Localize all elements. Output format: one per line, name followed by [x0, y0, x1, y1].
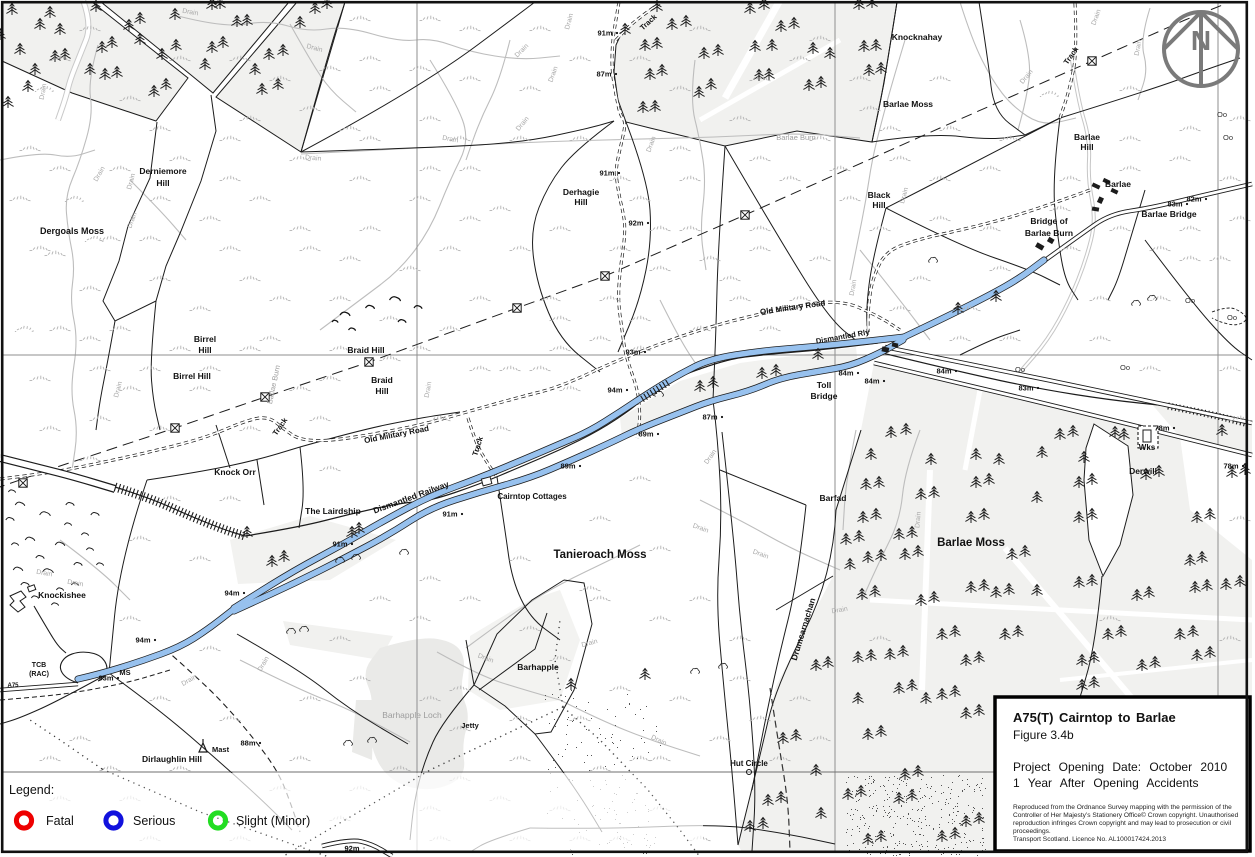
svg-text:Hill: Hill — [198, 345, 211, 355]
svg-text:92m: 92m — [628, 219, 643, 228]
svg-text:Jetty: Jetty — [461, 721, 479, 730]
svg-text:94m: 94m — [607, 386, 622, 395]
svg-text:Barlae Burn: Barlae Burn — [1025, 228, 1073, 238]
svg-text:Barlae: Barlae — [1105, 179, 1131, 189]
svg-text:Controller of Her Majesty’s St: Controller of Her Majesty’s Stationery O… — [1013, 811, 1239, 819]
svg-text:Figure 3.4b: Figure 3.4b — [1013, 728, 1074, 742]
svg-text:78m: 78m — [1223, 462, 1238, 471]
svg-text:Barlae Bridge: Barlae Bridge — [1141, 209, 1197, 219]
svg-text:91m: 91m — [597, 29, 612, 38]
svg-text:Dirlaughlin Hill: Dirlaughlin Hill — [142, 754, 202, 764]
svg-text:Oo: Oo — [1223, 133, 1233, 142]
svg-text:Cairntop Cottages: Cairntop Cottages — [497, 492, 567, 501]
svg-text:Hill: Hill — [1080, 142, 1093, 152]
svg-text:Hut Circle: Hut Circle — [730, 759, 768, 768]
svg-text:Slight (Minor): Slight (Minor) — [236, 814, 310, 828]
svg-text:Knock Orr: Knock Orr — [214, 467, 256, 477]
svg-text:78m: 78m — [1154, 424, 1169, 433]
svg-text:Birrel: Birrel — [194, 334, 216, 344]
svg-text:Barhapple Loch: Barhapple Loch — [382, 710, 442, 720]
svg-text:Serious: Serious — [133, 814, 175, 828]
svg-text:A75(T) Cairntop to Barlae: A75(T) Cairntop to Barlae — [1013, 710, 1176, 725]
svg-text:82m: 82m — [1186, 195, 1201, 204]
svg-text:Oo: Oo — [1185, 296, 1195, 305]
svg-text:Derwill: Derwill — [1129, 466, 1157, 476]
svg-text:Barhapple: Barhapple — [517, 662, 559, 672]
svg-text:Derhagie: Derhagie — [563, 187, 600, 197]
svg-text:Dergoals Moss: Dergoals Moss — [40, 226, 104, 236]
svg-text:83m: 83m — [1167, 200, 1182, 209]
svg-text:reproduction infringes Crown c: reproduction infringes Crown copyright a… — [1013, 820, 1232, 827]
svg-text:Knocknahay: Knocknahay — [892, 32, 943, 42]
svg-text:Hill: Hill — [574, 197, 587, 207]
svg-text:Transport Scotland. Licence No: Transport Scotland. Licence No. AL100017… — [1013, 836, 1166, 843]
svg-text:Barlae Burn: Barlae Burn — [776, 133, 816, 142]
svg-text:Drain: Drain — [305, 154, 322, 162]
svg-text:93m: 93m — [98, 674, 113, 683]
svg-text:Bridge of: Bridge of — [1030, 216, 1067, 226]
svg-text:89m: 89m — [638, 430, 653, 439]
svg-text:(RAC): (RAC) — [29, 671, 49, 678]
svg-text:Reproduced from the Ordnance S: Reproduced from the Ordnance Survey mapp… — [1013, 804, 1232, 811]
svg-text:Hill: Hill — [375, 386, 388, 396]
svg-text:Oo: Oo — [1120, 363, 1130, 372]
svg-text:88m: 88m — [240, 739, 255, 748]
svg-text:84m: 84m — [864, 377, 879, 386]
svg-text:87m: 87m — [702, 413, 717, 422]
svg-text:Knockishee: Knockishee — [38, 590, 86, 600]
svg-text:91m: 91m — [442, 510, 457, 519]
svg-text:The Lairdship: The Lairdship — [305, 506, 361, 516]
svg-text:Mast: Mast — [212, 745, 230, 754]
svg-text:Bridge: Bridge — [811, 391, 838, 401]
svg-text:proceedings.: proceedings. — [1013, 828, 1051, 835]
svg-text:Oo: Oo — [1015, 365, 1025, 374]
svg-text:Hill: Hill — [872, 200, 885, 210]
svg-text:Legend:: Legend: — [9, 783, 54, 797]
svg-text:Oo: Oo — [1217, 110, 1227, 119]
svg-text:83m: 83m — [1018, 384, 1033, 393]
svg-text:Project Opening Date: October: Project Opening Date: October 2010 — [1013, 760, 1227, 774]
svg-text:Barlae Moss: Barlae Moss — [937, 537, 1005, 549]
svg-text:91m: 91m — [599, 169, 614, 178]
svg-text:Birrel Hill: Birrel Hill — [173, 371, 211, 381]
svg-text:89m: 89m — [560, 462, 575, 471]
svg-text:Derniemore: Derniemore — [139, 166, 187, 176]
svg-text:1 Year After Opening Accidents: 1 Year After Opening Accidents — [1013, 776, 1198, 790]
svg-text:84m: 84m — [838, 369, 853, 378]
svg-text:Braid Hill: Braid Hill — [347, 345, 384, 355]
svg-text:Oo: Oo — [1227, 313, 1237, 322]
svg-text:Toll: Toll — [817, 380, 831, 390]
svg-text:N: N — [1191, 25, 1211, 56]
svg-text:87m: 87m — [596, 70, 611, 79]
svg-text:94m: 94m — [135, 636, 150, 645]
svg-text:84m: 84m — [936, 367, 951, 376]
svg-text:Wks: Wks — [1139, 443, 1156, 452]
svg-text:MS: MS — [119, 668, 130, 677]
svg-text:Fatal: Fatal — [46, 814, 74, 828]
svg-text:94m: 94m — [224, 589, 239, 598]
svg-text:Braid: Braid — [371, 375, 393, 385]
svg-text:Barlae Moss: Barlae Moss — [883, 99, 933, 109]
svg-text:Barlae: Barlae — [1074, 132, 1100, 142]
svg-text:TCB: TCB — [32, 662, 46, 669]
svg-text:Tanieroach Moss: Tanieroach Moss — [553, 549, 646, 561]
svg-text:Black: Black — [868, 190, 891, 200]
svg-text:Barfad: Barfad — [820, 493, 847, 503]
svg-text:Hill: Hill — [156, 178, 169, 188]
svg-text:Drain: Drain — [914, 511, 922, 528]
svg-text:93m: 93m — [625, 348, 640, 357]
svg-text:A75: A75 — [7, 683, 19, 689]
svg-text:91m: 91m — [332, 540, 347, 549]
